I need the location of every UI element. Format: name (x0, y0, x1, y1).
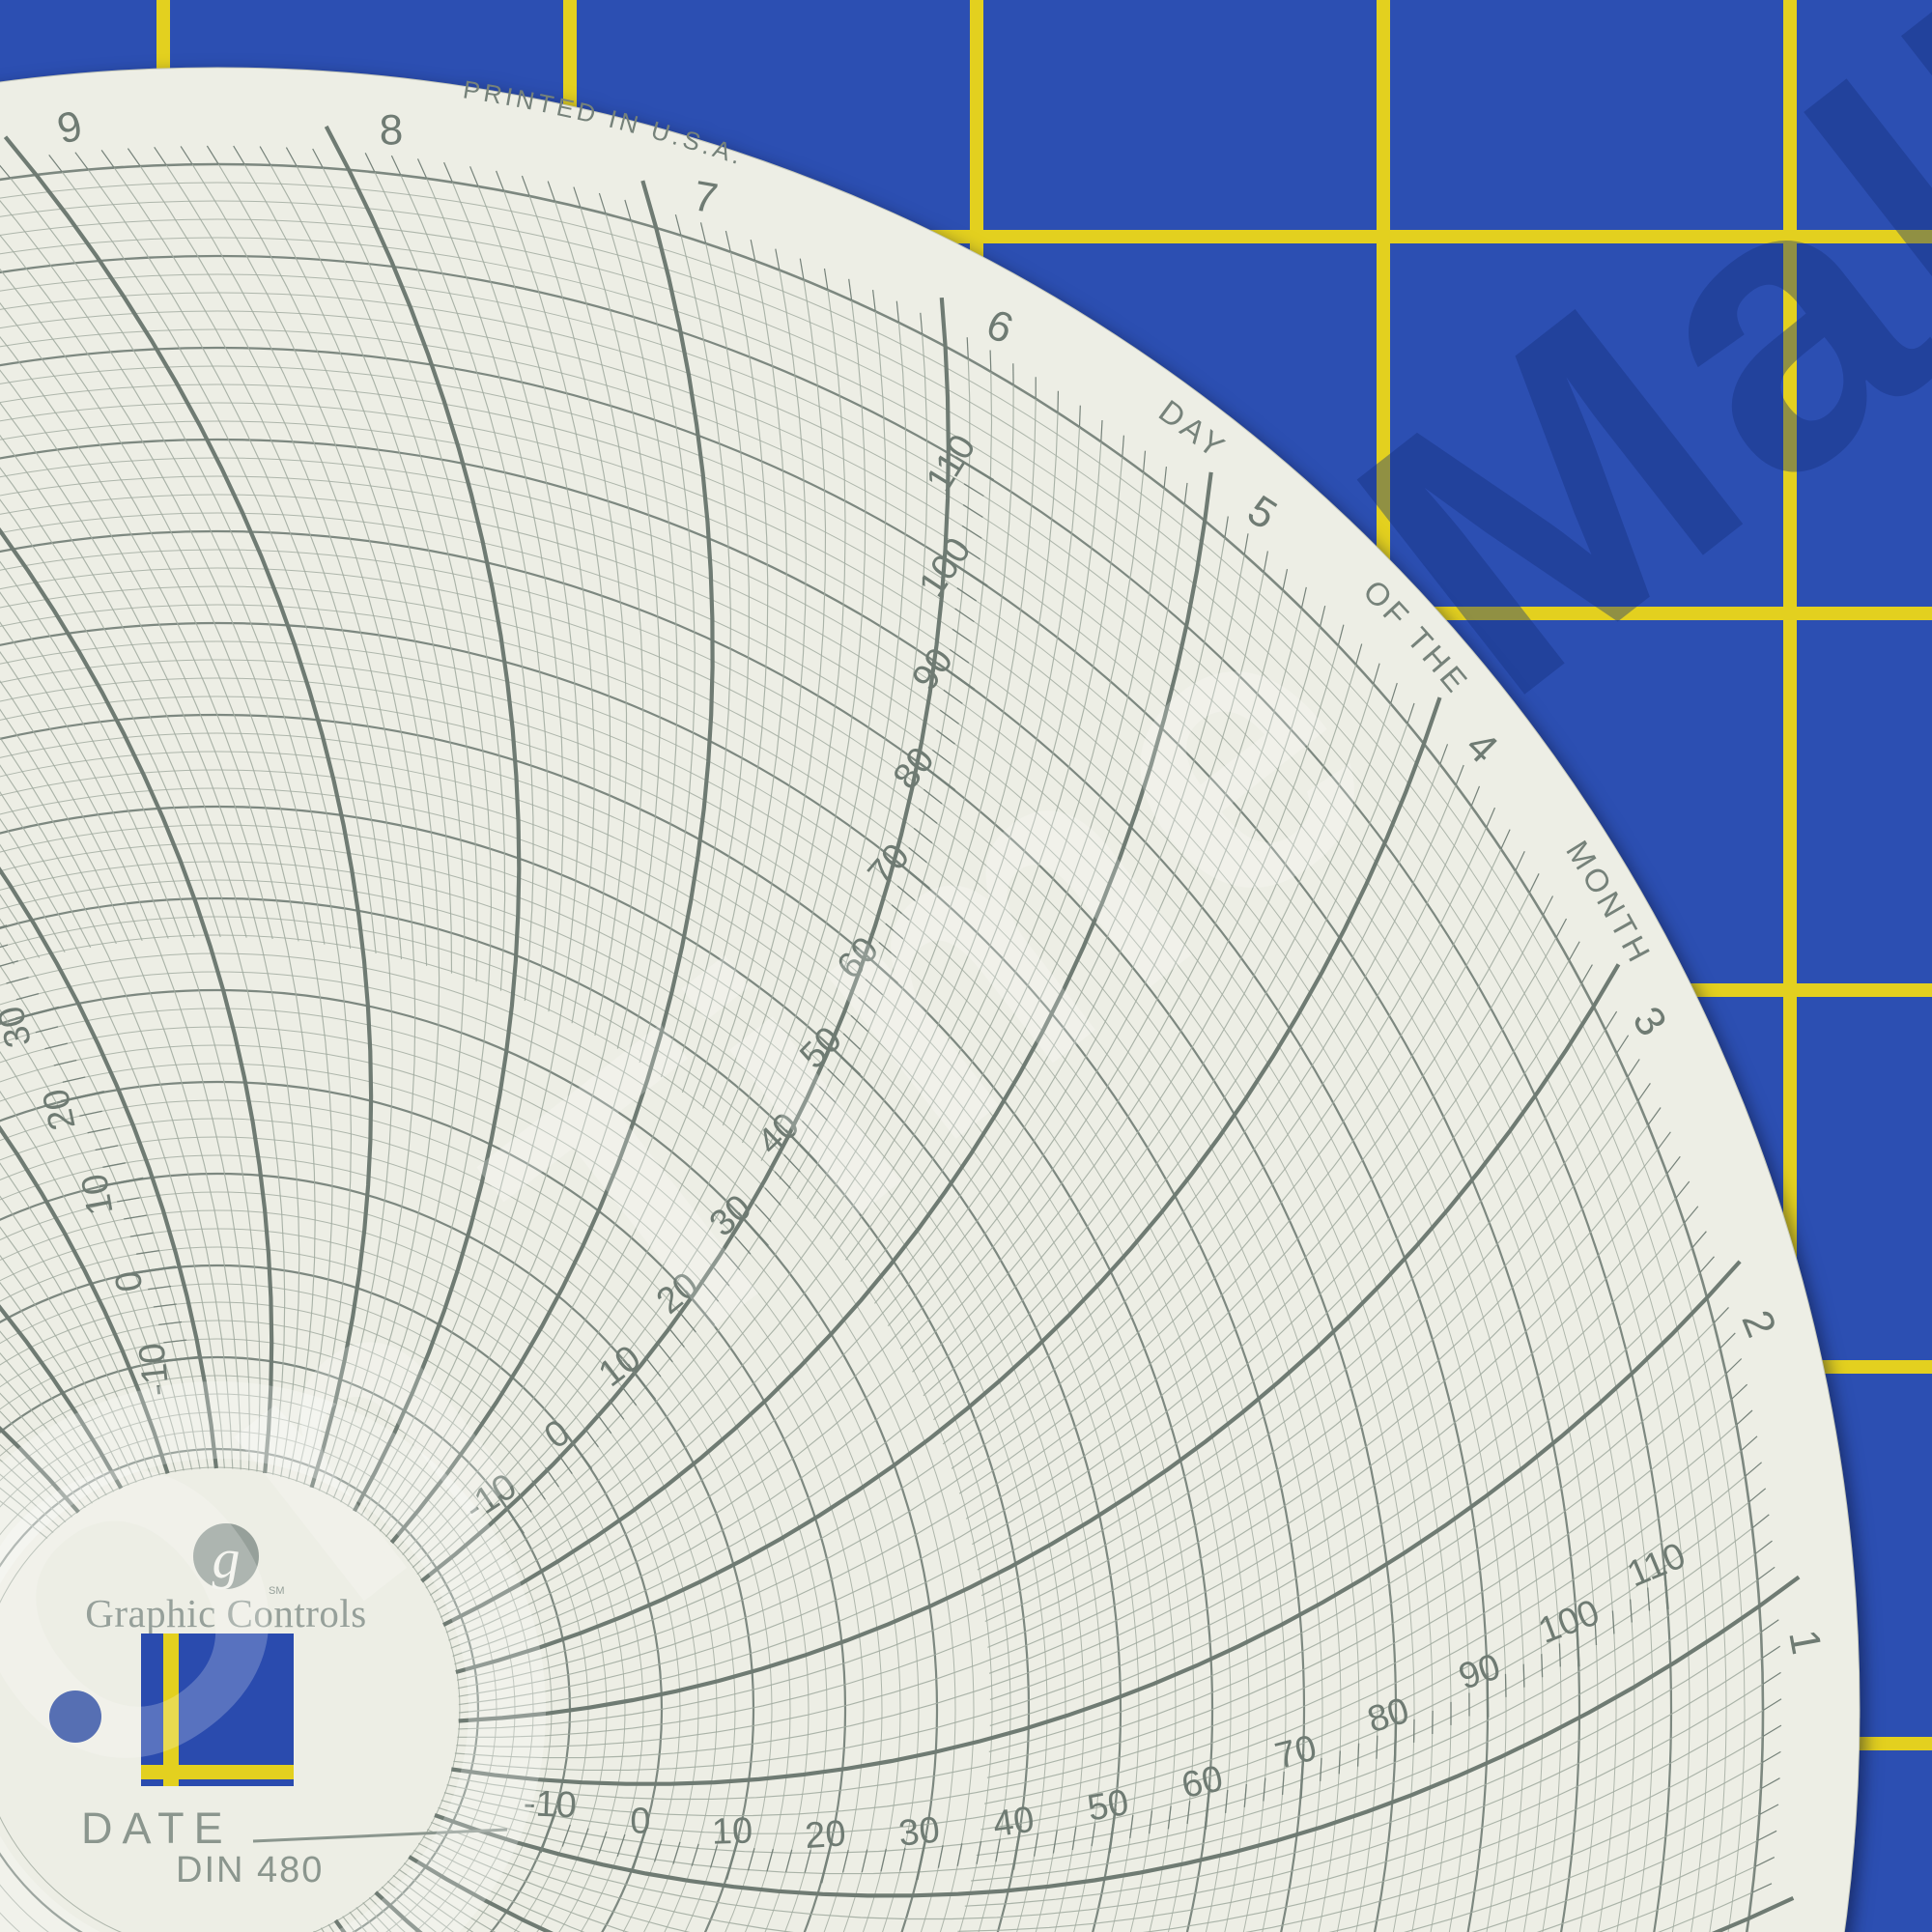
scale-label: 20 (36, 1085, 84, 1133)
scale-tick (1506, 1674, 1507, 1697)
g-logo-letter: g (213, 1527, 241, 1590)
boundary-tick (990, 351, 991, 372)
scale-label: 60 (1178, 1758, 1226, 1806)
date-label: DATE (81, 1804, 233, 1853)
hole-grid-line-h (141, 1765, 294, 1779)
scale-tick (1542, 1654, 1543, 1677)
scale-label: 30 (896, 1810, 941, 1855)
scale-label: 10 (74, 1171, 122, 1218)
photo-scene: -100102030405060708090100110-10010203040… (0, 0, 1932, 1932)
round-punch-hole (49, 1690, 101, 1743)
scale-label: 40 (990, 1800, 1037, 1845)
scale-label: 20 (804, 1813, 847, 1857)
scale-label: 10 (711, 1810, 753, 1852)
brand-name: Graphic Controls (85, 1591, 367, 1635)
scale-label: -10 (131, 1341, 178, 1398)
scale-label: 0 (630, 1801, 650, 1841)
model-number: DIN 480 (176, 1850, 324, 1890)
scale-label: -10 (523, 1783, 578, 1826)
boundary-tick (1080, 406, 1081, 427)
day-number-label: 8 (379, 106, 404, 155)
scale-label: 50 (1085, 1782, 1132, 1830)
square-center-hole (141, 1634, 294, 1786)
scale-tick (1523, 1664, 1524, 1688)
hole-grid-line-v (163, 1634, 179, 1786)
